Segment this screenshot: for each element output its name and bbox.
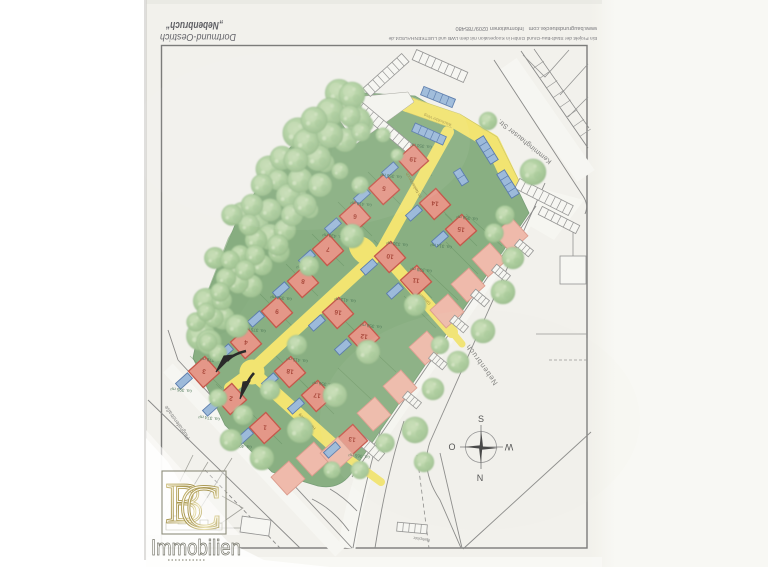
svg-text:S: S — [478, 414, 484, 424]
svg-text:O: O — [448, 442, 455, 452]
svg-text:W: W — [504, 442, 513, 452]
svg-text:C: C — [180, 474, 221, 542]
svg-text:N: N — [477, 473, 484, 483]
svg-text:Immobilien: Immobilien — [151, 535, 241, 560]
